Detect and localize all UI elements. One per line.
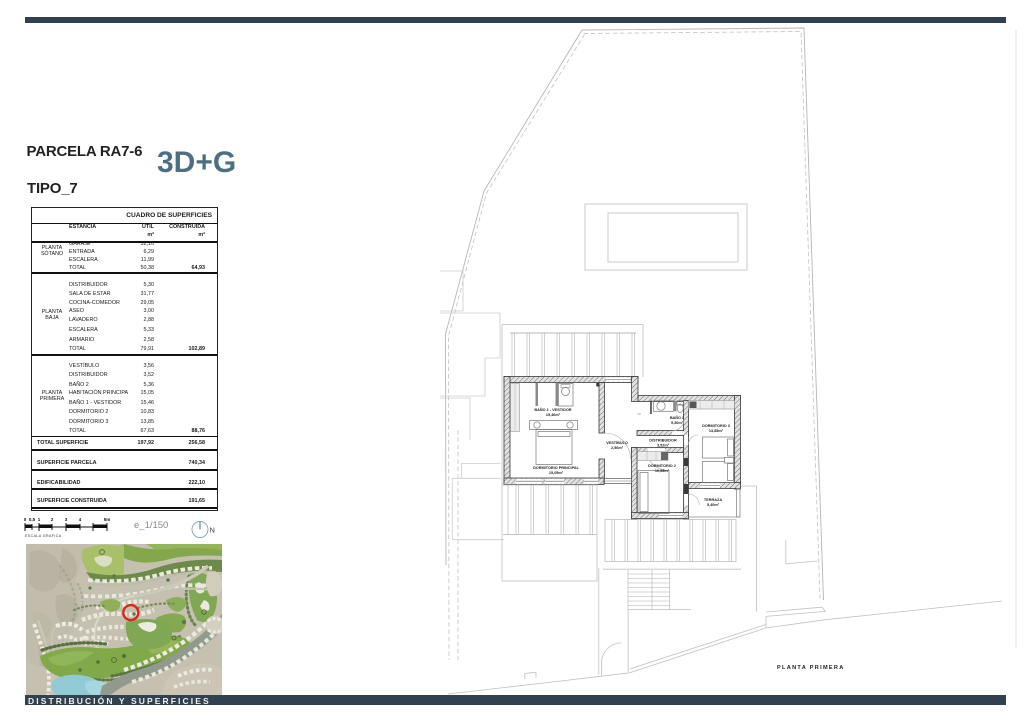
svg-text:10,83m²: 10,83m² [655,469,670,473]
svg-text:15,05m²: 15,05m² [549,471,564,475]
svg-text:13,85m²: 13,85m² [709,429,724,433]
svg-text:BAÑO 2: BAÑO 2 [670,415,684,420]
svg-text:ESCALA GRAFICA: ESCALA GRAFICA [25,534,62,538]
svg-text:0: 0 [24,517,27,522]
svg-text:BAÑO 1 - VESTIDOR: BAÑO 1 - VESTIDOR [534,407,571,412]
svg-text:0,5: 0,5 [29,517,36,522]
svg-text:N: N [210,526,215,535]
svg-text:1: 1 [38,517,41,522]
svg-text:4: 4 [79,517,82,522]
svg-text:2,56m²: 2,56m² [611,446,624,450]
svg-text:15,46m²: 15,46m² [546,413,561,417]
svg-text:TERRAZA: TERRAZA [704,498,722,502]
svg-text:DISTRIBUIDOR: DISTRIBUIDOR [649,439,677,443]
svg-text:2: 2 [51,517,54,522]
svg-text:5,40m²: 5,40m² [707,503,720,507]
svg-text:DORMITORIO 2: DORMITORIO 2 [648,464,676,468]
svg-text:3: 3 [65,517,68,522]
svg-text:PLANTA PRIMERA: PLANTA PRIMERA [777,665,845,671]
svg-text:DORMITORIO 3: DORMITORIO 3 [702,424,730,428]
svg-text:5,36m²: 5,36m² [671,421,684,425]
svg-text:5m: 5m [104,517,111,522]
svg-text:3,52m²: 3,52m² [657,444,670,448]
svg-text:VESTÍBULO: VESTÍBULO [606,440,628,445]
svg-text:DORMITORIO PRINCIPAL: DORMITORIO PRINCIPAL [533,466,580,470]
